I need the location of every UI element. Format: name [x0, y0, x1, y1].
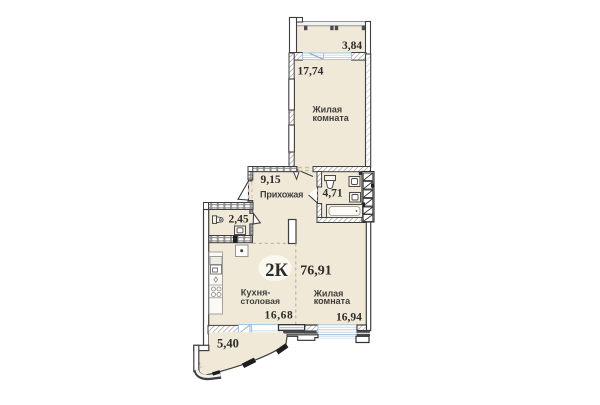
svg-text:столовая: столовая	[241, 296, 280, 306]
svg-text:Прихожая: Прихожая	[260, 189, 303, 199]
svg-text:76,91: 76,91	[300, 264, 332, 279]
svg-text:5,40: 5,40	[217, 337, 239, 351]
svg-text:комната: комната	[314, 296, 351, 306]
svg-text:16,68: 16,68	[265, 309, 294, 321]
svg-text:4,71: 4,71	[323, 188, 343, 200]
svg-text:17,74: 17,74	[298, 65, 324, 77]
svg-text:3,84: 3,84	[342, 40, 362, 52]
svg-text:2,45: 2,45	[229, 214, 249, 226]
svg-text:комната: комната	[313, 113, 350, 123]
svg-text:16,94: 16,94	[336, 312, 362, 324]
svg-text:2К: 2К	[265, 261, 288, 281]
svg-text:9,15: 9,15	[261, 174, 281, 186]
